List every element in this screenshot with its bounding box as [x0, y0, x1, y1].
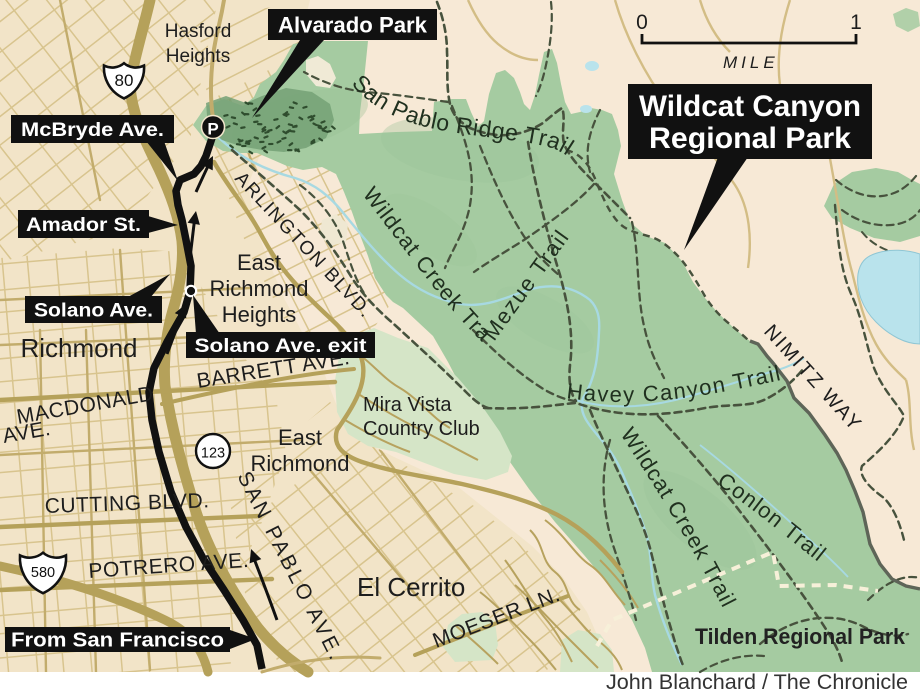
svg-text:580: 580 — [31, 565, 55, 581]
svg-text:Heights: Heights — [222, 302, 297, 327]
svg-text:Country Club: Country Club — [363, 418, 480, 440]
svg-text:East: East — [237, 250, 281, 275]
svg-text:Amador St.: Amador St. — [26, 215, 141, 236]
svg-text:Richmond: Richmond — [20, 333, 137, 363]
svg-text:P: P — [207, 120, 218, 139]
svg-text:Tilden Regional Park: Tilden Regional Park — [695, 624, 906, 649]
svg-text:East: East — [278, 425, 322, 450]
svg-text:El Cerrito: El Cerrito — [357, 572, 465, 602]
svg-text:Alvarado Park: Alvarado Park — [278, 12, 428, 37]
svg-text:John Blanchard / The Chronicle: John Blanchard / The Chronicle — [606, 671, 908, 694]
svg-text:Regional Park: Regional Park — [649, 122, 851, 155]
svg-text:123: 123 — [201, 446, 225, 462]
svg-text:Solano Ave. exit: Solano Ave. exit — [195, 336, 368, 357]
svg-text:McBryde Ave.: McBryde Ave. — [21, 120, 164, 141]
svg-text:Richmond: Richmond — [250, 451, 349, 476]
svg-text:Heights: Heights — [166, 46, 230, 67]
svg-text:Richmond: Richmond — [209, 276, 308, 301]
svg-text:Wildcat Canyon: Wildcat Canyon — [639, 90, 861, 123]
svg-text:1: 1 — [850, 11, 862, 34]
svg-text:Solano Ave.: Solano Ave. — [34, 300, 153, 321]
svg-text:80: 80 — [115, 71, 134, 90]
svg-text:MILE: MILE — [723, 53, 779, 72]
svg-text:Mira Vista: Mira Vista — [363, 394, 452, 416]
svg-text:Hasford: Hasford — [165, 21, 232, 42]
svg-text:0: 0 — [636, 11, 648, 34]
svg-text:From San Francisco: From San Francisco — [11, 630, 224, 652]
